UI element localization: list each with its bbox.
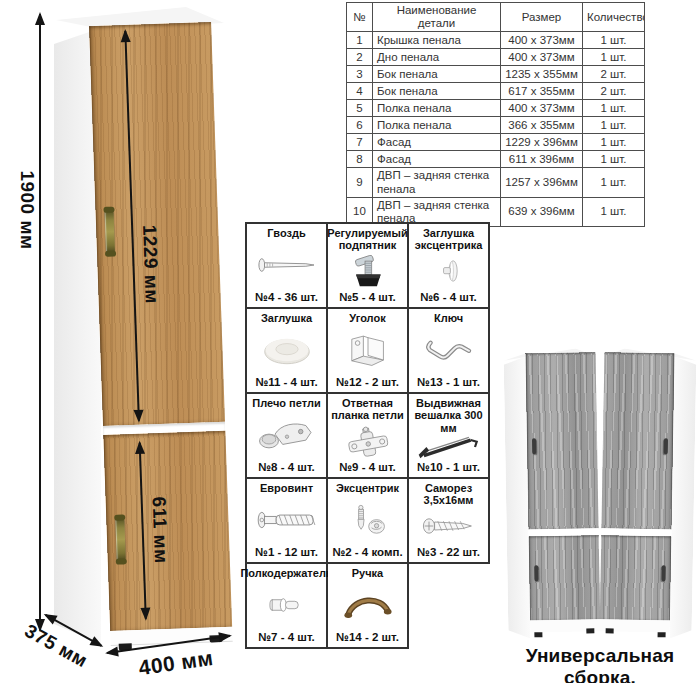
gray-cabinet-foot bbox=[534, 632, 542, 637]
gray-upper-door-handle bbox=[532, 438, 536, 454]
hardware-item-title: Выдвижная вешалка 300 мм bbox=[409, 394, 488, 434]
hardware-row: Плечо петли №8 - 4 шт. Ответная планка п… bbox=[245, 394, 490, 479]
part-qty-cell: 1 шт. bbox=[583, 32, 645, 49]
hardware-item-title: Саморез 3,5х16мм bbox=[409, 479, 488, 507]
hardware-item: Ответная планка петли №9 - 4 шт. bbox=[328, 394, 409, 479]
hardware-item-qty: №11 - 4 шт. bbox=[255, 376, 317, 392]
hardware-item: Регулируемый подпятник №5 - 4 шт. bbox=[328, 224, 409, 309]
cabinet-front: 1229 мм 611 мм bbox=[89, 22, 233, 652]
table-header-row: № Наименование детали Размер Количество bbox=[347, 3, 645, 32]
part-size-cell: 400 х 373мм bbox=[501, 100, 583, 117]
hardware-row: Евровинт №1 - 12 шт. Эксцентрик №2 - 4 к… bbox=[245, 479, 490, 564]
part-name-cell: ДВП – задняя стенка пенала bbox=[373, 168, 501, 197]
part-size-cell: 366 х 355мм bbox=[501, 117, 583, 134]
upper-door-dimension-label: 1229 мм bbox=[138, 224, 163, 304]
hardware-item-qty: №9 - 4 шт. bbox=[339, 461, 395, 477]
part-number-cell: 3 bbox=[347, 66, 373, 83]
shelf-pin-icon bbox=[247, 579, 326, 631]
hardware-item-qty: №2 - 4 комп. bbox=[332, 546, 402, 562]
gray-lower-door-handle bbox=[534, 565, 538, 581]
pullout-hanger-icon bbox=[409, 434, 488, 461]
col-part-name: Наименование детали bbox=[373, 3, 501, 32]
part-qty-cell: 1 шт. bbox=[583, 100, 645, 117]
hardware-grid: Гвоздь №4 - 36 шт. Регулируемый подпятни… bbox=[245, 222, 490, 649]
euro-screw-icon bbox=[247, 494, 326, 546]
table-row: 7Фасад1229 х 396мм1 шт. bbox=[347, 134, 645, 151]
hardware-row: Заглушка №11 - 4 шт. Уголок №12 - 2 шт. … bbox=[245, 309, 490, 394]
universal-assembly-preview: Универсальная сборка. bbox=[500, 342, 700, 678]
hardware-item: Выдвижная вешалка 300 мм №10 - 1 шт. bbox=[409, 394, 490, 479]
hardware-item: Гвоздь №4 - 36 шт. bbox=[247, 224, 328, 309]
table-row: 8Фасад611 х 396мм1 шт. bbox=[347, 151, 645, 168]
part-number-cell: 4 bbox=[347, 83, 373, 100]
cabinet-drawing: 1900 мм 1229 мм 611 мм 375 мм 400 мм bbox=[0, 0, 245, 683]
gray-cabinet-front bbox=[525, 352, 600, 641]
gray-lower-door bbox=[529, 535, 600, 620]
table-row: 2Дно пенала400 х 373мм1 шт. bbox=[347, 49, 645, 66]
width-dimension-label: 400 мм bbox=[137, 646, 215, 680]
hex-key-icon bbox=[409, 324, 488, 376]
hardware-item-title: Эксцентрик bbox=[335, 479, 400, 494]
part-size-cell: 617 х 355мм bbox=[501, 83, 583, 100]
corner-bracket-icon bbox=[328, 324, 407, 376]
col-size: Размер bbox=[501, 3, 583, 32]
hardware-row: Полкодержатель №7 - 4 шт. Ручка №14 - 2 … bbox=[245, 564, 490, 649]
part-qty-cell: 1 шт. bbox=[583, 197, 645, 226]
hardware-item-title: Ответная планка петли bbox=[328, 394, 407, 422]
table-row: 4Бок пенала617 х 355мм2 шт. bbox=[347, 83, 645, 100]
gray-cabinet-front bbox=[599, 352, 674, 641]
part-number-cell: 5 bbox=[347, 100, 373, 117]
part-size-cell: 1257 х 396мм bbox=[501, 168, 583, 197]
part-number-cell: 7 bbox=[347, 134, 373, 151]
hinge-arm-icon bbox=[247, 409, 326, 461]
gray-lower-door-handle bbox=[662, 565, 666, 581]
part-name-cell: Полка пенала bbox=[373, 117, 501, 134]
col-quantity: Количество bbox=[583, 3, 645, 32]
table-row: 9ДВП – задняя стенка пенала1257 х 396мм1… bbox=[347, 168, 645, 197]
hardware-item: Плечо петли №8 - 4 шт. bbox=[247, 394, 328, 479]
cam-lock-icon bbox=[328, 494, 407, 546]
hardware-item-qty: №7 - 4 шт. bbox=[258, 631, 314, 647]
hardware-item-title: Заглушка эксцентрика bbox=[409, 224, 488, 252]
part-number-cell: 6 bbox=[347, 117, 373, 134]
table-row: 6Полка пенала366 х 355мм1 шт. bbox=[347, 117, 645, 134]
part-qty-cell: 1 шт. bbox=[583, 168, 645, 197]
hardware-item-qty: №5 - 4 шт. bbox=[339, 291, 395, 307]
hardware-item-qty: №4 - 36 шт. bbox=[255, 291, 318, 307]
part-qty-cell: 1 шт. bbox=[583, 151, 645, 168]
part-number-cell: 8 bbox=[347, 151, 373, 168]
part-qty-cell: 1 шт. bbox=[583, 134, 645, 151]
part-size-cell: 400 х 373мм bbox=[501, 49, 583, 66]
handle-icon bbox=[328, 579, 407, 631]
gray-cabinet-foot bbox=[658, 632, 666, 637]
gray-upper-door bbox=[525, 352, 598, 529]
hardware-item-qty: №3 - 22 шт. bbox=[417, 546, 480, 562]
hardware-item-title: Гвоздь bbox=[266, 224, 306, 239]
hardware-item: Ручка №14 - 2 шт. bbox=[328, 564, 409, 649]
part-size-cell: 639 х 396мм bbox=[501, 197, 583, 226]
table-row: 3Бок пенала1235 х 355мм2 шт. bbox=[347, 66, 645, 83]
hinge-plate-icon bbox=[328, 422, 407, 461]
part-number-cell: 2 bbox=[347, 49, 373, 66]
parts-table: № Наименование детали Размер Количество … bbox=[346, 2, 645, 227]
adjustable-foot-icon bbox=[328, 252, 407, 291]
hardware-item: Заглушка №11 - 4 шт. bbox=[247, 309, 328, 394]
part-qty-cell: 1 шт. bbox=[583, 117, 645, 134]
assembly-sheet: 1900 мм 1229 мм 611 мм 375 мм 400 мм № bbox=[0, 0, 700, 683]
hardware-item-title: Уголок bbox=[348, 309, 386, 324]
lower-door-handle bbox=[115, 516, 126, 562]
hardware-item-qty: №1 - 12 шт. bbox=[255, 546, 318, 562]
hardware-item: Ключ №13 - 1 шт. bbox=[409, 309, 490, 394]
gray-cabinet-foot bbox=[606, 628, 614, 633]
part-qty-cell: 2 шт. bbox=[583, 83, 645, 100]
hardware-item: Эксцентрик №2 - 4 комп. bbox=[328, 479, 409, 564]
hardware-item-qty: №10 - 1 шт. bbox=[417, 461, 480, 477]
hardware-item-qty: №14 - 2 шт. bbox=[336, 631, 399, 647]
hardware-item: Евровинт №1 - 12 шт. bbox=[247, 479, 328, 564]
hardware-item-qty: №8 - 4 шт. bbox=[258, 461, 314, 477]
gray-cabinet-left bbox=[503, 347, 600, 647]
part-name-cell: Фасад bbox=[373, 151, 501, 168]
hardware-item-title: Полкодержатель bbox=[239, 564, 333, 579]
part-number-cell: 9 bbox=[347, 168, 373, 197]
hardware-item: Уголок №12 - 2 шт. bbox=[328, 309, 409, 394]
self-tapping-screw-icon bbox=[409, 507, 488, 546]
gray-cabinet-right bbox=[599, 347, 696, 647]
part-name-cell: Крышка пенала bbox=[373, 32, 501, 49]
part-name-cell: Дно пенала bbox=[373, 49, 501, 66]
part-qty-cell: 1 шт. bbox=[583, 49, 645, 66]
nail-icon bbox=[247, 239, 326, 291]
part-name-cell: Фасад bbox=[373, 134, 501, 151]
hardware-item: Заглушка эксцентрика №6 - 4 шт. bbox=[409, 224, 490, 309]
hardware-item-qty: №13 - 1 шт. bbox=[417, 376, 480, 392]
hardware-item-title: Регулируемый подпятник bbox=[326, 224, 408, 252]
universal-assembly-caption: Универсальная сборка. bbox=[500, 645, 700, 683]
part-qty-cell: 2 шт. bbox=[583, 66, 645, 83]
hardware-item-title: Плечо петли bbox=[251, 394, 321, 409]
hardware-item-qty: №12 - 2 шт. bbox=[336, 376, 399, 392]
round-cap-icon bbox=[247, 324, 326, 376]
hardware-row: Гвоздь №4 - 36 шт. Регулируемый подпятни… bbox=[245, 222, 490, 309]
part-name-cell: Полка пенала bbox=[373, 100, 501, 117]
hardware-item: Полкодержатель №7 - 4 шт. bbox=[247, 564, 328, 649]
hardware-item-title: Ключ bbox=[433, 309, 464, 324]
gray-upper-door-handle bbox=[664, 438, 668, 454]
part-size-cell: 1235 х 355мм bbox=[501, 66, 583, 83]
height-dimension-arrow bbox=[39, 14, 41, 630]
lower-door-dimension-label: 611 мм bbox=[148, 496, 172, 564]
height-dimension-label: 1900 мм bbox=[16, 170, 38, 249]
cam-cap-icon bbox=[409, 252, 488, 291]
hardware-item-title: Евровинт bbox=[259, 479, 314, 494]
part-size-cell: 400 х 373мм bbox=[501, 32, 583, 49]
part-number-cell: 1 bbox=[347, 32, 373, 49]
col-number: № bbox=[347, 3, 373, 32]
part-size-cell: 611 х 396мм bbox=[501, 151, 583, 168]
hardware-item: Саморез 3,5х16мм №3 - 22 шт. bbox=[409, 479, 490, 564]
part-name-cell: Бок пенала bbox=[373, 66, 501, 83]
hardware-item-title: Заглушка bbox=[260, 309, 313, 324]
part-name-cell: Бок пенала bbox=[373, 83, 501, 100]
table-row: 1Крышка пенала400 х 373мм1 шт. bbox=[347, 32, 645, 49]
part-size-cell: 1229 х 396мм bbox=[501, 134, 583, 151]
table-row: 5Полка пенала400 х 373мм1 шт. bbox=[347, 100, 645, 117]
upper-door-handle bbox=[104, 209, 115, 255]
hardware-item-title: Ручка bbox=[351, 564, 384, 579]
gray-cabinet-foot bbox=[586, 628, 594, 633]
hardware-item-qty: №6 - 4 шт. bbox=[420, 291, 476, 307]
